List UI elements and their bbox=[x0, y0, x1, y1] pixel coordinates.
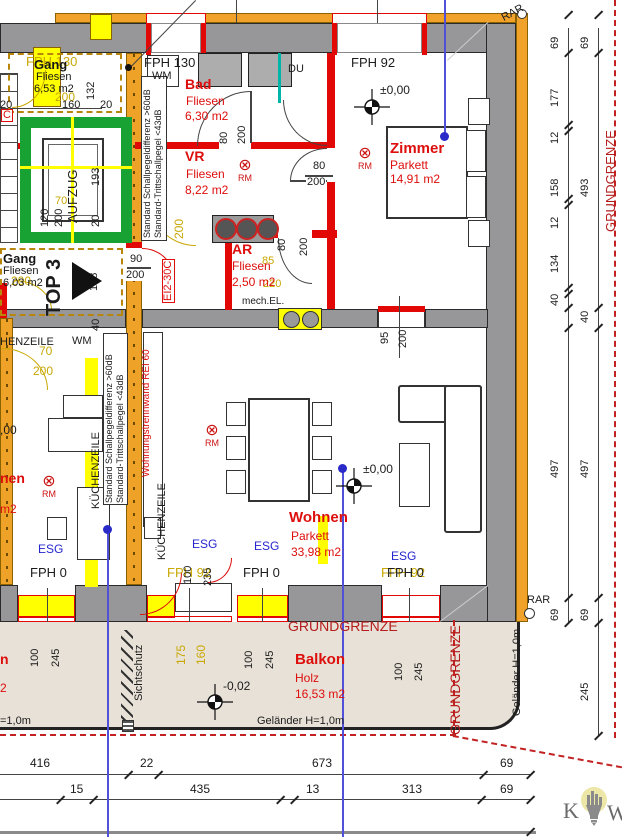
rar-circle bbox=[524, 608, 535, 619]
party-wall bbox=[126, 278, 142, 585]
washbasin bbox=[248, 53, 292, 87]
room-area: 6,30 m2 bbox=[185, 110, 228, 122]
survey-point-icon bbox=[197, 684, 233, 720]
sound-insulation-note: Standard Schallpegeldifferenz >60dB bbox=[105, 354, 114, 503]
dim: 40 bbox=[550, 294, 561, 306]
dim: 313 bbox=[402, 783, 422, 795]
rm-label: RM bbox=[42, 490, 56, 499]
dim: 245 bbox=[51, 649, 62, 667]
room-name: Balkon bbox=[295, 652, 345, 667]
fph-label: FPH 130 bbox=[144, 56, 195, 69]
balcony-floor bbox=[0, 622, 520, 730]
top3-triangle bbox=[72, 262, 102, 300]
dim: 673 bbox=[312, 757, 332, 769]
property-line-label: GRUNDGRENZE bbox=[448, 625, 462, 735]
wall-exterior-bottom bbox=[75, 585, 147, 622]
dim: 69 bbox=[580, 37, 591, 49]
room-name: Bad bbox=[185, 77, 211, 91]
wall-partition bbox=[327, 53, 335, 148]
wall-insulation-top bbox=[55, 13, 516, 23]
dim-chain bbox=[598, 28, 599, 737]
dim-tick bbox=[594, 731, 603, 740]
railing-label: =1,0m bbox=[0, 716, 31, 727]
window-glass bbox=[337, 23, 422, 53]
room-finish: Fliesen bbox=[186, 95, 225, 107]
dim: 13 bbox=[306, 783, 319, 795]
dim: 20 bbox=[100, 100, 112, 111]
dim: 200 bbox=[237, 126, 248, 144]
dim: 158 bbox=[550, 179, 561, 197]
lightbulb-logo-icon bbox=[580, 786, 608, 828]
dim: 160 bbox=[62, 100, 80, 111]
dim: 12 bbox=[550, 132, 561, 144]
dim: 497 bbox=[580, 460, 591, 478]
dim: 80 bbox=[312, 161, 326, 172]
window-jamb bbox=[201, 23, 206, 55]
dim: 200 bbox=[125, 270, 145, 281]
rm-symbol: ⊗ bbox=[358, 146, 372, 162]
dim: 100 bbox=[30, 649, 41, 667]
party-wall-label: Wohnungstrennwand REI 60 bbox=[142, 349, 152, 477]
room-name: Wohnen bbox=[289, 510, 348, 525]
dim: 90 bbox=[129, 254, 143, 265]
wall-interior-band bbox=[142, 309, 378, 328]
axis-line bbox=[20, 166, 132, 169]
privacy-screen-label: Sichtschutz bbox=[134, 645, 145, 701]
dim: 80 bbox=[219, 132, 230, 144]
privacy-screen bbox=[121, 630, 133, 726]
dim: 100 bbox=[394, 663, 405, 681]
property-line bbox=[0, 734, 456, 736]
fire-door-label: EI2-30C bbox=[162, 259, 175, 303]
dim: 12 bbox=[550, 217, 561, 229]
dim-line bbox=[127, 267, 151, 269]
window-jamb bbox=[332, 23, 337, 55]
dim-tick bbox=[594, 10, 603, 19]
sound-insulation-note: Standard Schallpegeldifferenz >60dB bbox=[143, 89, 152, 238]
dim: 245 bbox=[265, 651, 276, 669]
dim: 435 bbox=[190, 783, 210, 795]
dim: 200 bbox=[173, 219, 185, 239]
sofa bbox=[444, 385, 482, 533]
window-axis bbox=[236, 0, 237, 23]
appliance-burner bbox=[257, 218, 279, 240]
room-name: Zimmer bbox=[390, 141, 444, 156]
survey-axis bbox=[107, 530, 109, 837]
dim-chain bbox=[0, 774, 532, 775]
glass-label: ESG bbox=[391, 550, 416, 562]
wall-partition bbox=[327, 182, 335, 309]
survey-axis bbox=[444, 0, 446, 137]
door-arc bbox=[283, 100, 327, 146]
dim: 80 bbox=[277, 239, 288, 251]
dim: 20 bbox=[91, 215, 102, 227]
privacy-screen-post bbox=[122, 720, 134, 732]
dim: 193 bbox=[91, 168, 102, 186]
railing-label: Geländer H=1,0m bbox=[257, 716, 344, 727]
level-label: ,00 bbox=[0, 424, 17, 436]
room-finish: Parkett bbox=[390, 159, 428, 171]
room-name: AR bbox=[232, 242, 252, 256]
rar-label: RAR bbox=[527, 595, 550, 606]
dim: 493 bbox=[580, 179, 591, 197]
room-name: VR bbox=[185, 149, 204, 163]
glass-label: ESG bbox=[38, 543, 63, 555]
survey-point-icon bbox=[354, 89, 390, 125]
glass-label: ESG bbox=[254, 540, 279, 552]
room-label-partial: nen bbox=[0, 471, 25, 485]
property-line bbox=[614, 0, 616, 738]
fph-label: FPH 0 bbox=[30, 566, 67, 579]
fph-label: FPH 0 bbox=[387, 566, 424, 579]
smoke-detector-icon: ⊗RM bbox=[205, 423, 219, 448]
chair bbox=[226, 470, 246, 494]
chair bbox=[312, 470, 332, 494]
washing-machine-label: WM bbox=[72, 336, 92, 347]
room-area: 14,91 m2 bbox=[390, 173, 440, 185]
property-line bbox=[453, 735, 622, 768]
dim: 69 bbox=[550, 37, 561, 49]
survey-axis-dot bbox=[103, 525, 112, 534]
chair bbox=[312, 402, 332, 426]
dim: 69 bbox=[500, 757, 513, 769]
wall-interior-band bbox=[425, 309, 488, 328]
kitchen-label: HENZEILE bbox=[0, 337, 54, 348]
room-label-partial: m2 bbox=[0, 503, 17, 515]
room-area: 33,98 m2 bbox=[291, 546, 341, 558]
highlight-chimney bbox=[90, 14, 112, 40]
fph-label: FPH 92 bbox=[351, 56, 395, 69]
dim: 95 bbox=[380, 332, 391, 344]
elevator-label: AUFZUG bbox=[66, 170, 79, 223]
room-finish: Fliesen bbox=[36, 72, 71, 83]
window-axis bbox=[399, 296, 400, 358]
smoke-detector-icon: ⊗RM bbox=[238, 158, 252, 183]
kitchen-label: KÜCHENZEILE bbox=[157, 483, 168, 560]
leader-dot bbox=[125, 64, 132, 71]
property-line-label: GRUNDGRENZE bbox=[288, 619, 398, 633]
dim-tick bbox=[526, 795, 535, 804]
dim: 200 bbox=[33, 365, 53, 377]
sink-bowl bbox=[283, 311, 300, 328]
dim: 416 bbox=[30, 757, 50, 769]
dim: 245 bbox=[580, 683, 591, 701]
window-axis bbox=[377, 0, 378, 23]
room-area: 6,53 m2 bbox=[34, 84, 74, 95]
pillow bbox=[466, 130, 486, 172]
kitchen-counter bbox=[63, 395, 103, 418]
unit-number-label: TOP 3 bbox=[44, 259, 64, 316]
rm-label: RM bbox=[238, 174, 252, 183]
dim-chain bbox=[0, 799, 532, 800]
sink-bowl bbox=[302, 311, 319, 328]
nightstand bbox=[468, 98, 490, 125]
room-label-partial: 2 bbox=[0, 682, 7, 694]
logo-letter-w: W bbox=[607, 800, 622, 826]
room-area: 6,03 m2 bbox=[3, 278, 43, 289]
nightstand bbox=[468, 220, 490, 247]
coffee-table bbox=[399, 443, 430, 507]
window-interior bbox=[378, 311, 425, 328]
dim: 15 bbox=[70, 783, 83, 795]
dim: 22 bbox=[140, 757, 153, 769]
window-sill bbox=[378, 306, 425, 312]
rm-label: RM bbox=[358, 162, 372, 171]
rm-symbol: ⊗ bbox=[238, 158, 252, 174]
mech-vent-label: mech.EL. bbox=[242, 297, 284, 307]
sound-insulation-note: Standard-Trittschallpegel <43dB bbox=[116, 375, 125, 504]
dim: 120 bbox=[40, 209, 51, 227]
dim: 40 bbox=[91, 319, 102, 331]
dim: 69 bbox=[550, 609, 561, 621]
room-area: 16,53 m2 bbox=[295, 688, 345, 700]
window bbox=[382, 595, 440, 618]
wall-partition bbox=[225, 238, 232, 310]
dim: 200 bbox=[299, 238, 310, 256]
wall-partition bbox=[312, 230, 337, 238]
room-name: Gang bbox=[34, 58, 67, 71]
chair bbox=[312, 436, 332, 460]
room-area: 8,22 m2 bbox=[185, 184, 228, 196]
room-finish: Holz bbox=[295, 672, 319, 684]
dim: 40 bbox=[580, 311, 591, 323]
balcony-door-leaf bbox=[175, 583, 232, 612]
side-table bbox=[47, 517, 67, 540]
room-finish: Parkett bbox=[291, 530, 329, 542]
appliance-burner bbox=[215, 218, 237, 240]
dim: 160 bbox=[195, 645, 207, 665]
rm-label: RM bbox=[205, 439, 219, 448]
dim: 100 bbox=[244, 651, 255, 669]
washing-machine-label: WM bbox=[152, 71, 172, 82]
wall-insulation-right bbox=[516, 13, 528, 622]
dim: 175 bbox=[175, 645, 187, 665]
property-line-label: GRUNDGRENZE bbox=[604, 130, 617, 232]
dim: 235 bbox=[203, 568, 214, 586]
dim: 245 bbox=[414, 663, 425, 681]
railing-label: Geländer H=1,0m bbox=[512, 629, 523, 716]
dim-tick bbox=[526, 770, 535, 779]
rm-symbol: ⊗ bbox=[205, 423, 219, 439]
dim: 200 bbox=[306, 177, 326, 188]
room-finish: Fliesen bbox=[232, 260, 271, 272]
room-finish: Fliesen bbox=[186, 168, 225, 180]
rm-symbol: ⊗ bbox=[42, 474, 56, 490]
pillow bbox=[466, 176, 486, 218]
dim: 100 bbox=[183, 566, 194, 584]
floor-plan: Gang Fliesen 6,53 m2 Bad Fliesen 6,30 m2… bbox=[0, 0, 622, 837]
dim-tick bbox=[564, 10, 573, 19]
dim: 134 bbox=[550, 255, 561, 273]
logo-letter-k: K bbox=[563, 798, 579, 824]
dim-line bbox=[305, 175, 333, 177]
chair bbox=[226, 436, 246, 460]
shower-label: DU bbox=[288, 64, 304, 75]
dim: 200 bbox=[54, 209, 65, 227]
glass-label: ESG bbox=[192, 538, 217, 550]
dim-tick bbox=[564, 618, 573, 627]
room-area: 2,50 m2 bbox=[232, 276, 275, 288]
room-name: Gang bbox=[3, 252, 36, 265]
facade-line bbox=[0, 831, 536, 834]
dim: 69 bbox=[580, 609, 591, 621]
chair bbox=[226, 402, 246, 426]
room-finish: Fliesen bbox=[3, 266, 38, 277]
sound-insulation-note: Standard-Trittschallpegel <43dB bbox=[154, 110, 163, 239]
shower-glass bbox=[278, 53, 281, 103]
dim: 497 bbox=[550, 460, 561, 478]
dim: 200 bbox=[398, 330, 409, 348]
kitchen-label: KÜCHENZEILE bbox=[91, 432, 102, 509]
dim: 132 bbox=[86, 82, 97, 100]
wall-exterior-right bbox=[486, 23, 516, 622]
wall-exterior-bottom bbox=[0, 585, 18, 622]
appliance-burner bbox=[236, 218, 258, 240]
room-label-partial: n bbox=[0, 652, 9, 666]
survey-point-icon bbox=[336, 468, 372, 504]
wall-exterior-top bbox=[0, 23, 516, 53]
smoke-detector-icon: ⊗RM bbox=[42, 474, 56, 499]
smoke-detector-icon: ⊗RM bbox=[358, 146, 372, 171]
dim: 69 bbox=[500, 783, 513, 795]
dining-table bbox=[248, 398, 310, 502]
dim: 20 bbox=[0, 100, 12, 111]
fph-label: FPH 0 bbox=[243, 566, 280, 579]
wall-exterior-bottom bbox=[288, 585, 382, 622]
dim: 177 bbox=[550, 89, 561, 107]
window-jamb bbox=[422, 23, 427, 55]
